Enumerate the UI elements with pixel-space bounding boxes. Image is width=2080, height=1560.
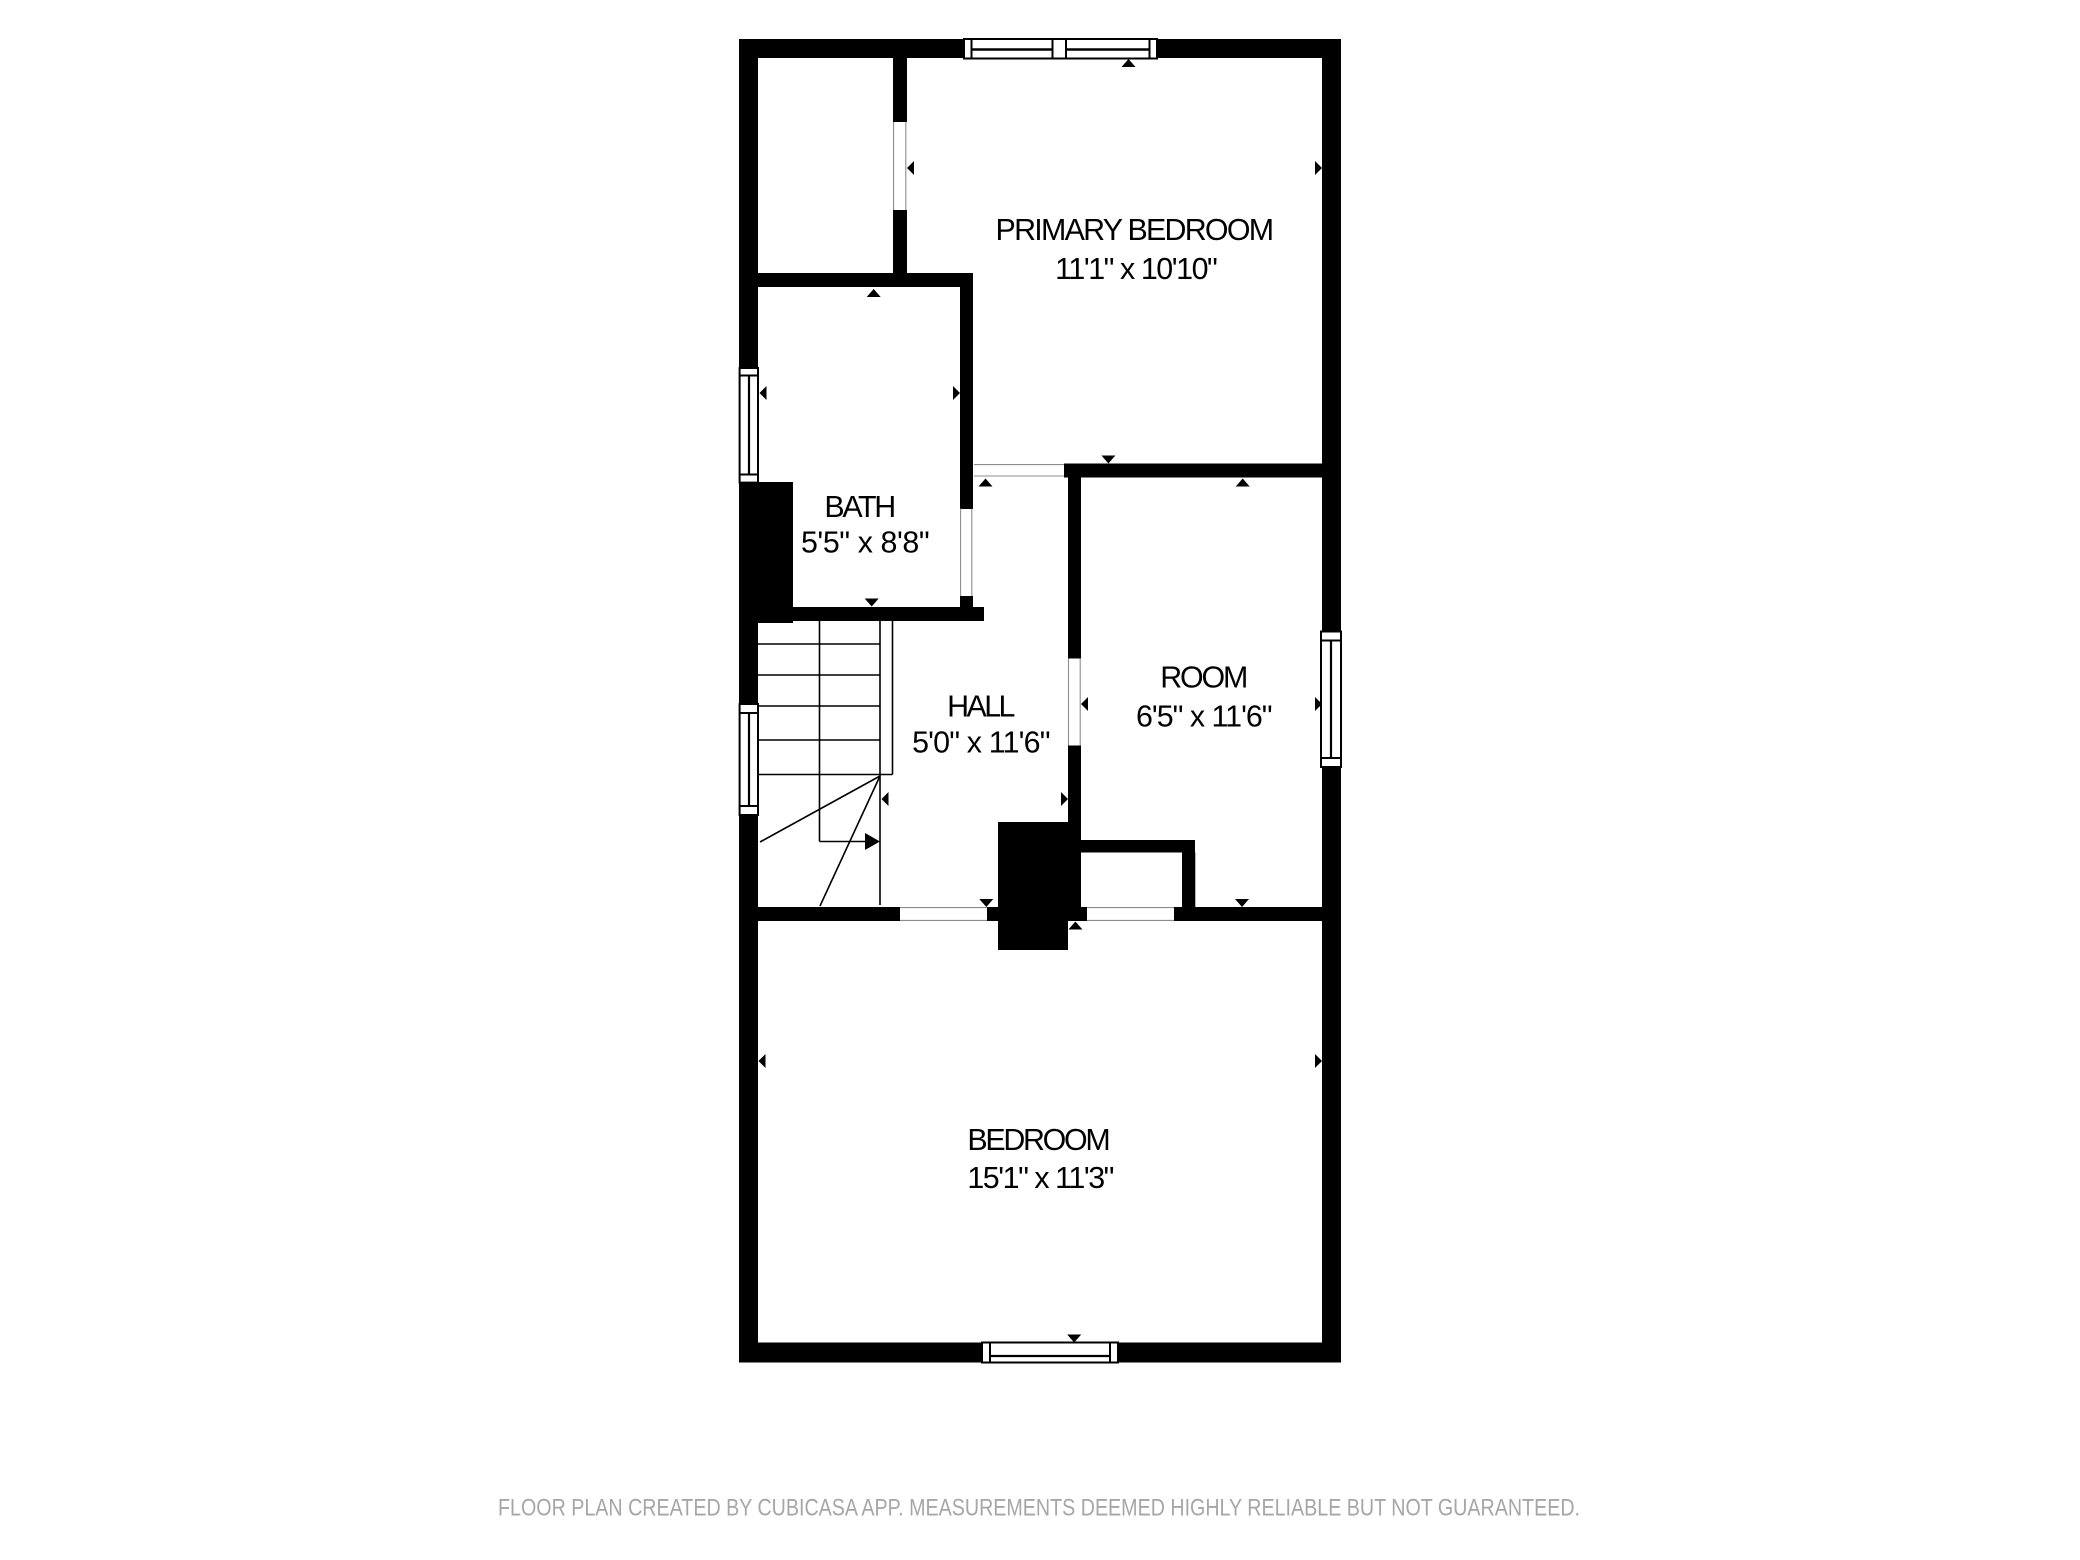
svg-text:BEDROOM: BEDROOM (967, 1123, 1110, 1157)
svg-text:HALL: HALL (947, 690, 1015, 724)
svg-text:15'1" x 11'3": 15'1" x 11'3" (967, 1161, 1114, 1195)
svg-text:PRIMARY BEDROOM: PRIMARY BEDROOM (996, 213, 1275, 247)
svg-text:ROOM: ROOM (1160, 660, 1248, 694)
svg-text:5'5" x 8'8": 5'5" x 8'8" (801, 526, 930, 560)
svg-text:6'5" x 11'6": 6'5" x 11'6" (1136, 699, 1273, 733)
svg-text:11'1" x 10'10": 11'1" x 10'10" (1055, 252, 1218, 286)
svg-text:BATH: BATH (824, 490, 896, 524)
svg-text:5'0" x 11'6": 5'0" x 11'6" (912, 726, 1050, 760)
svg-text:FLOOR PLAN CREATED BY CUBICASA: FLOOR PLAN CREATED BY CUBICASA APP. MEAS… (498, 1494, 1580, 1521)
